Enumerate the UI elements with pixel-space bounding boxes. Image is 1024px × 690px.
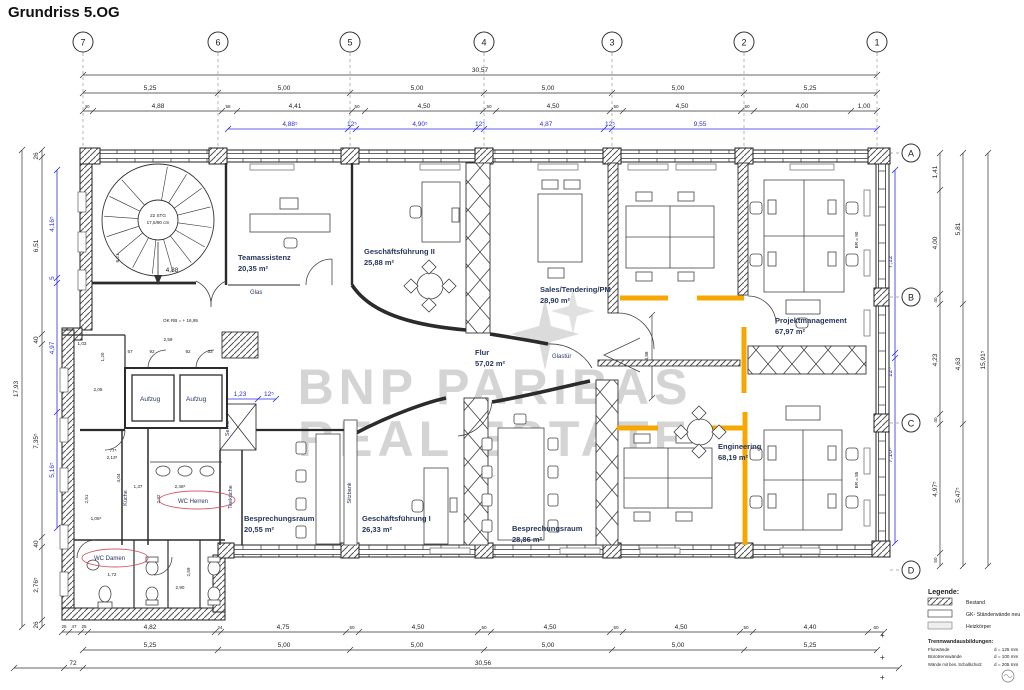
- dim-label: 5,25: [144, 642, 157, 649]
- svg-text:+: +: [880, 653, 885, 662]
- axis-label: B: [908, 293, 914, 303]
- dim-label: 40: [933, 297, 938, 303]
- dim-label: 4,00: [796, 103, 809, 110]
- room-name: Aufzug: [140, 396, 161, 403]
- dim-label: 77⁵: [109, 448, 116, 453]
- dim-label: 57: [127, 349, 133, 354]
- room-name: Flur: [475, 348, 489, 357]
- axis-label: 4: [481, 38, 486, 48]
- dim-label: 30,56: [475, 660, 492, 667]
- dim-label: 12⁵: [605, 121, 615, 128]
- dim-label: 1,00: [858, 103, 871, 110]
- svg-text:+: +: [880, 631, 885, 640]
- room-name: Projektmanagement: [775, 316, 847, 325]
- dim-label: 8,21: [115, 253, 120, 262]
- dim-label: 40: [84, 104, 90, 109]
- dim-label: 24: [217, 625, 223, 630]
- dim-label: 26: [33, 621, 40, 629]
- dim-label: 4,75: [277, 624, 290, 631]
- dim-label: 2,32: [156, 494, 161, 503]
- dim-label: 60: [873, 625, 879, 630]
- dim-label: 2,59: [164, 337, 173, 342]
- dim-label: 2,48⁵: [175, 484, 186, 489]
- dim-label: 4,04: [116, 473, 121, 482]
- dim-label: 40: [933, 417, 938, 423]
- dim-label: 4,88: [166, 267, 179, 274]
- dim-label: 4,41: [289, 103, 302, 110]
- room-area: 57,02 m²: [475, 359, 506, 368]
- legend-sub-value: d = 100 mm: [994, 654, 1019, 659]
- dim-label: 2,59: [186, 567, 191, 576]
- legend-sub-value: d = 205 mm: [994, 662, 1019, 667]
- axis-label: D: [908, 566, 915, 576]
- dim-label: 2,90: [176, 585, 185, 590]
- room-name: Geschäftsführung II: [364, 247, 435, 256]
- legend: Legende: Bestand GK- Ständerwände neu He…: [880, 589, 1020, 682]
- legend-swatch-heizkoerper: [928, 622, 952, 629]
- dim-label: 47: [71, 624, 77, 629]
- room-name: WC Damen: [94, 556, 125, 562]
- dim-label: 4,23: [932, 353, 939, 366]
- dim-label: 4,87: [540, 121, 553, 128]
- dim-label: 5,00: [542, 85, 555, 92]
- dim-label: 3,88: [644, 351, 649, 360]
- room-name: Engineering: [718, 442, 762, 451]
- dim-label: 12⁵: [347, 121, 357, 128]
- dim-label: 2,13⁵: [107, 455, 118, 460]
- room-name: Küche: [123, 490, 129, 506]
- dim-label: 5,25: [804, 642, 817, 649]
- dim-label: 4,50: [544, 624, 557, 631]
- axis-label: 5: [347, 38, 352, 48]
- note-br: BR = 85: [854, 471, 859, 488]
- dim-label: 4,40: [804, 624, 817, 631]
- floor-plan-drawing: BNP PARIBAS REAL ESTATE 7 6 5 4 3 2 1 A: [0, 0, 1024, 690]
- dim-label: 1,72: [108, 572, 117, 577]
- dim-label: 4,97: [49, 341, 56, 354]
- dim-label: 50: [743, 625, 749, 630]
- dim-label: 58: [225, 104, 231, 109]
- dim-label: 50: [933, 557, 938, 563]
- dim-label: 4,63: [955, 357, 962, 370]
- stair-note: 17,5/90 cm: [147, 220, 170, 225]
- room-area: 20,35 m²: [238, 264, 269, 273]
- room-area: 26,33 m²: [362, 525, 393, 534]
- room-name: Teeküche: [228, 485, 234, 509]
- room-area: 20,55 m²: [244, 525, 275, 534]
- room-name: Sitzbank: [347, 482, 353, 503]
- legend-title: Legende:: [928, 589, 959, 596]
- legend-subtitle: Trennwandausbildungen:: [928, 639, 993, 645]
- axis-label: 6: [215, 38, 220, 48]
- dim-label: 17,93: [13, 380, 20, 397]
- dim-label: 12⁵: [264, 391, 274, 398]
- dim-label: 40: [33, 336, 40, 344]
- dim-label: 6,51: [33, 239, 40, 252]
- dim-label: 4,50: [418, 103, 431, 110]
- dim-label: 7,35⁵: [33, 433, 40, 449]
- dim-label: 4,97⁵: [932, 481, 939, 497]
- dim-label: 2,76⁵: [33, 577, 40, 593]
- fold-marks: +++: [880, 631, 885, 682]
- dim-label: 15,91⁵: [980, 350, 987, 369]
- dim-label: 12⁵: [475, 121, 485, 128]
- dim-label: 4,00: [932, 236, 939, 249]
- dim-label: 1,03: [78, 341, 87, 346]
- dim-label: 50: [486, 104, 492, 109]
- legend-sub-label: Flurwände: [928, 647, 950, 652]
- dim-label: 5,00: [278, 642, 291, 649]
- dim-label: 50: [613, 104, 619, 109]
- dim-label: 5,00: [672, 85, 685, 92]
- room-name: Teamassistenz: [238, 253, 291, 262]
- room-area: 67,97 m²: [775, 327, 806, 336]
- axis-label: C: [908, 419, 915, 429]
- axis-label: 7: [80, 38, 85, 48]
- dim-label: 5,00: [542, 642, 555, 649]
- room-name: Server: [225, 420, 231, 436]
- dim-label: 50: [354, 104, 360, 109]
- dim-label: 25: [81, 624, 87, 629]
- legend-sub-label: Wände mit bes. Schallschutz: [928, 662, 982, 667]
- dim-label: 9,55: [694, 121, 707, 128]
- stair-note: 22 STG: [150, 213, 166, 218]
- legend-swatch-bestand: [928, 598, 952, 605]
- note-ok-rb: OK RB = + 16,95: [163, 318, 198, 323]
- dim-label: 25: [61, 624, 67, 629]
- axis-label: 3: [609, 38, 614, 48]
- legend-sub-label: Bürotrennwände: [928, 654, 962, 659]
- dim-label: 50: [349, 625, 355, 630]
- room-name: Besprechungsraum: [244, 514, 315, 523]
- legend-swatch-gk-waende: [928, 610, 952, 617]
- dim-label: 4,88: [152, 103, 165, 110]
- dim-label: 33: [207, 349, 213, 354]
- dim-label: 4,90⁵: [412, 121, 428, 128]
- axis-label: 1: [874, 38, 879, 48]
- dim-label: 4,50: [547, 103, 560, 110]
- dim-label: 5,25: [144, 85, 157, 92]
- dim-label: 5,25: [804, 85, 817, 92]
- dim-label: 4,16⁵: [49, 216, 56, 232]
- dim-label: 1,05⁵: [91, 516, 102, 521]
- room-area: 68,19 m²: [718, 453, 749, 462]
- legend-item-label: Bestand: [966, 600, 985, 606]
- dim-label: 2,51: [84, 494, 89, 503]
- note-glastuer: Glastür: [552, 354, 571, 360]
- room-area: 28,90 m²: [540, 296, 571, 305]
- dim-label: 5,00: [278, 85, 291, 92]
- room-area: 25,88 m²: [364, 258, 395, 267]
- legend-item-label: GK- Ständerwände neu: [966, 612, 1020, 618]
- room-name: Aufzug: [186, 396, 207, 403]
- dim-label: 30,57: [472, 67, 489, 74]
- dim-label: 5,81: [955, 222, 962, 235]
- room-name: Sales/Tendering/PM: [540, 285, 611, 294]
- room-area: 28,86 m²: [512, 535, 543, 544]
- dim-label: 4,82: [144, 624, 157, 631]
- svg-text:+: +: [880, 673, 885, 682]
- dim-label: 40: [33, 540, 40, 548]
- note-glas: Glas: [250, 290, 262, 296]
- dim-label: 5,00: [672, 642, 685, 649]
- dim-label: 4,50: [676, 103, 689, 110]
- axis-label: A: [908, 149, 914, 159]
- room-name: Besprechungsraum: [512, 524, 583, 533]
- dim-label: 5,47⁵: [955, 487, 962, 503]
- dim-label: 50: [613, 625, 619, 630]
- floor-plan-page: Grundriss 5.OG: [0, 0, 1024, 690]
- dim-label: 1,41: [932, 165, 939, 178]
- dim-label: 5,00: [411, 642, 424, 649]
- axis-label: 2: [741, 38, 746, 48]
- dim-label: 26: [33, 152, 40, 160]
- dim-label: 72: [69, 660, 77, 667]
- room-name: WC Herren: [178, 499, 208, 505]
- dim-label: 92: [185, 349, 191, 354]
- dim-label: 4,50: [412, 624, 425, 631]
- dim-label: 2,05: [94, 387, 103, 392]
- legend-sub-value: d = 125 mm: [994, 647, 1019, 652]
- dim-label: 1,20: [100, 352, 105, 361]
- dim-label: 1,37: [134, 484, 143, 489]
- dim-label: 50: [481, 625, 487, 630]
- legend-item-label: Heizkörper: [966, 624, 991, 630]
- dim-label: 1,23: [234, 391, 247, 398]
- dim-label: 4,88⁵: [282, 121, 298, 128]
- dim-label: 5: [49, 276, 56, 280]
- dim-label: 92: [149, 349, 155, 354]
- room-name: Geschäftsführung I: [362, 514, 431, 523]
- dim-label: 5,00: [411, 85, 424, 92]
- page-title: Grundriss 5.OG: [8, 4, 120, 21]
- dim-label: 5,16⁵: [49, 462, 56, 478]
- stamp-squiggle-icon: [1004, 675, 1012, 678]
- dim-label: 4,50: [675, 624, 688, 631]
- dim-label: 50: [744, 104, 750, 109]
- note-br: BR = 90: [854, 231, 859, 248]
